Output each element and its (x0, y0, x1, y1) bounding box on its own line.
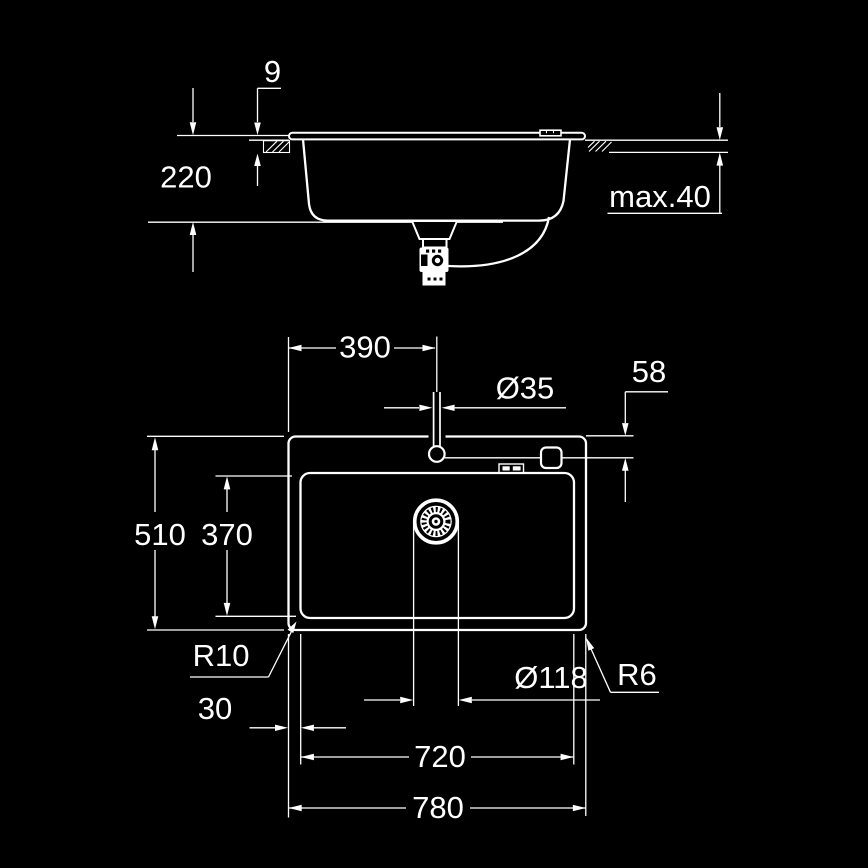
trap-detail (440, 278, 443, 281)
drain-center-dot (434, 520, 437, 523)
dim-line (586, 392, 668, 502)
dim-worktop-thickness: max.40 (608, 93, 724, 214)
arrowhead (561, 754, 574, 760)
dim-bowl-inner-depth: 370 (201, 476, 296, 616)
trap-detail (434, 278, 437, 281)
knob-body (540, 130, 561, 136)
dim-label-overall-depth: 510 (134, 517, 186, 552)
remote-knob-plan (541, 448, 562, 469)
arrowhead (152, 616, 159, 629)
dim-line (250, 634, 347, 818)
valve-detail (438, 250, 441, 253)
arrowhead (586, 638, 594, 651)
arrowhead (224, 476, 231, 489)
arrowhead (254, 154, 261, 167)
overflow-slot (499, 464, 524, 473)
dim-label-tap-hole-diameter: Ø35 (496, 371, 555, 406)
remote-knob-side (540, 130, 561, 136)
drain-assembly-side (412, 221, 457, 286)
arrowhead (301, 754, 314, 760)
technical-drawing-page: 9 220 max.40 (0, 0, 868, 868)
arrowhead (400, 697, 413, 703)
overflow-hose (449, 217, 550, 266)
dim-rim-height: 9 (254, 54, 281, 186)
dim-label-bowl-inner-depth: 370 (201, 517, 253, 552)
arrowhead (224, 603, 231, 616)
tap-hole (429, 446, 445, 462)
dim-label-bowl-depth: 220 (160, 160, 212, 195)
slot-detail (513, 466, 521, 470)
dim-line (258, 88, 282, 122)
dim-label-worktop-thickness: max.40 (609, 179, 711, 214)
drain-neck (423, 239, 447, 248)
dim-bowl-depth: 220 (160, 88, 212, 272)
arrowhead (275, 725, 288, 731)
arrowhead (622, 423, 629, 436)
arrowhead (419, 405, 432, 411)
dim-tap-hole-diameter: Ø35 (384, 371, 566, 412)
dim-tap-offset-x: 390 (289, 330, 436, 433)
dim-bowl-inner-width: 720 (301, 634, 574, 774)
bowl-outline-plan (301, 473, 575, 618)
valve-detail (426, 250, 429, 253)
dim-label-edge-margin: 30 (198, 691, 232, 726)
edge-gap-patch (429, 430, 446, 442)
side-view: 9 220 max.40 (148, 54, 728, 286)
slot-detail (503, 466, 510, 470)
sink-dimension-drawing: 9 220 max.40 (0, 0, 868, 868)
arrowhead (190, 222, 197, 235)
dim-drain-diameter: Ø118 (364, 660, 600, 703)
worktop-left-section (249, 140, 290, 152)
valve-detail (432, 250, 435, 253)
trap-detail (428, 278, 431, 281)
bowl-section-outline (303, 139, 570, 220)
dim-label-tap-offset-y: 58 (632, 354, 666, 389)
arrowhead (442, 405, 455, 411)
dim-label-bowl-inner-width: 720 (414, 739, 466, 774)
worktop-right-section (585, 140, 728, 152)
dim-label-rim-height: 9 (264, 54, 281, 89)
arrowhead (423, 345, 436, 351)
dim-label-drain-diameter: Ø118 (514, 660, 588, 695)
dim-label-tap-offset-x: 390 (339, 330, 391, 365)
dim-label-overall-width: 780 (412, 790, 464, 825)
arrowhead (717, 153, 724, 166)
plan-view: 390 Ø35 58 510 370 (134, 330, 668, 826)
arrowhead (289, 345, 302, 351)
drain-plan (415, 500, 458, 543)
dim-tap-offset-y: 58 (586, 354, 668, 502)
arrowhead (152, 437, 159, 450)
arrowhead (254, 123, 261, 136)
arrowhead (459, 697, 472, 703)
arrowhead (301, 725, 314, 731)
valve-detail (421, 255, 428, 267)
dim-label-outer-corner-radius: R6 (617, 657, 657, 692)
dim-label-bowl-corner-radius: R10 (193, 638, 250, 673)
arrowhead (717, 127, 724, 140)
hatch-lines (588, 141, 612, 151)
arrowhead (289, 805, 302, 811)
arrowhead (573, 805, 586, 811)
hatch-lines (266, 141, 289, 152)
dim-outer-corner-radius: R6 (586, 638, 659, 693)
arrowhead (622, 458, 629, 471)
drain-flange (412, 221, 457, 239)
arrowhead (190, 122, 197, 135)
